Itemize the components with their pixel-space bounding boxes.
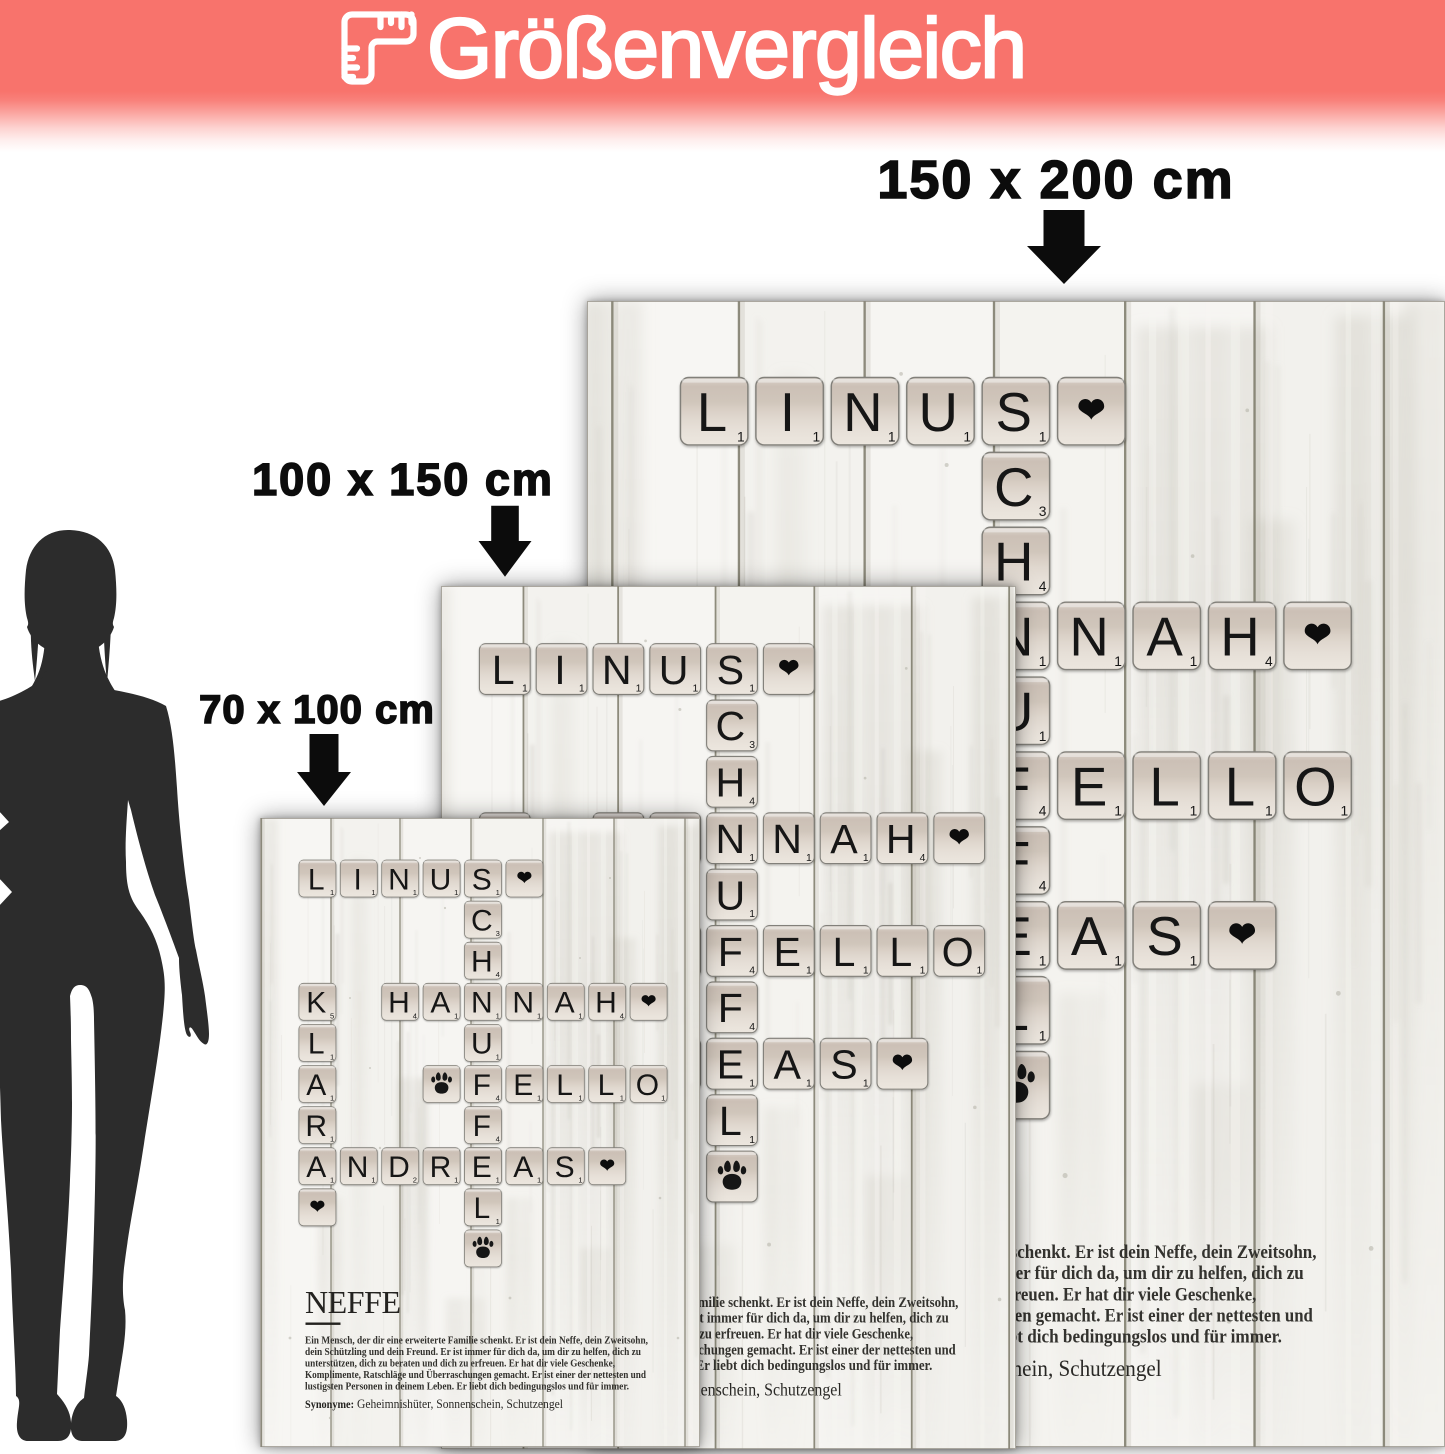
- svg-text:70 x 100 cm: 70 x 100 cm: [199, 688, 435, 732]
- svg-text:150 x 200 cm: 150 x 200 cm: [877, 150, 1234, 210]
- svg-text:100 x 150 cm: 100 x 150 cm: [252, 454, 554, 505]
